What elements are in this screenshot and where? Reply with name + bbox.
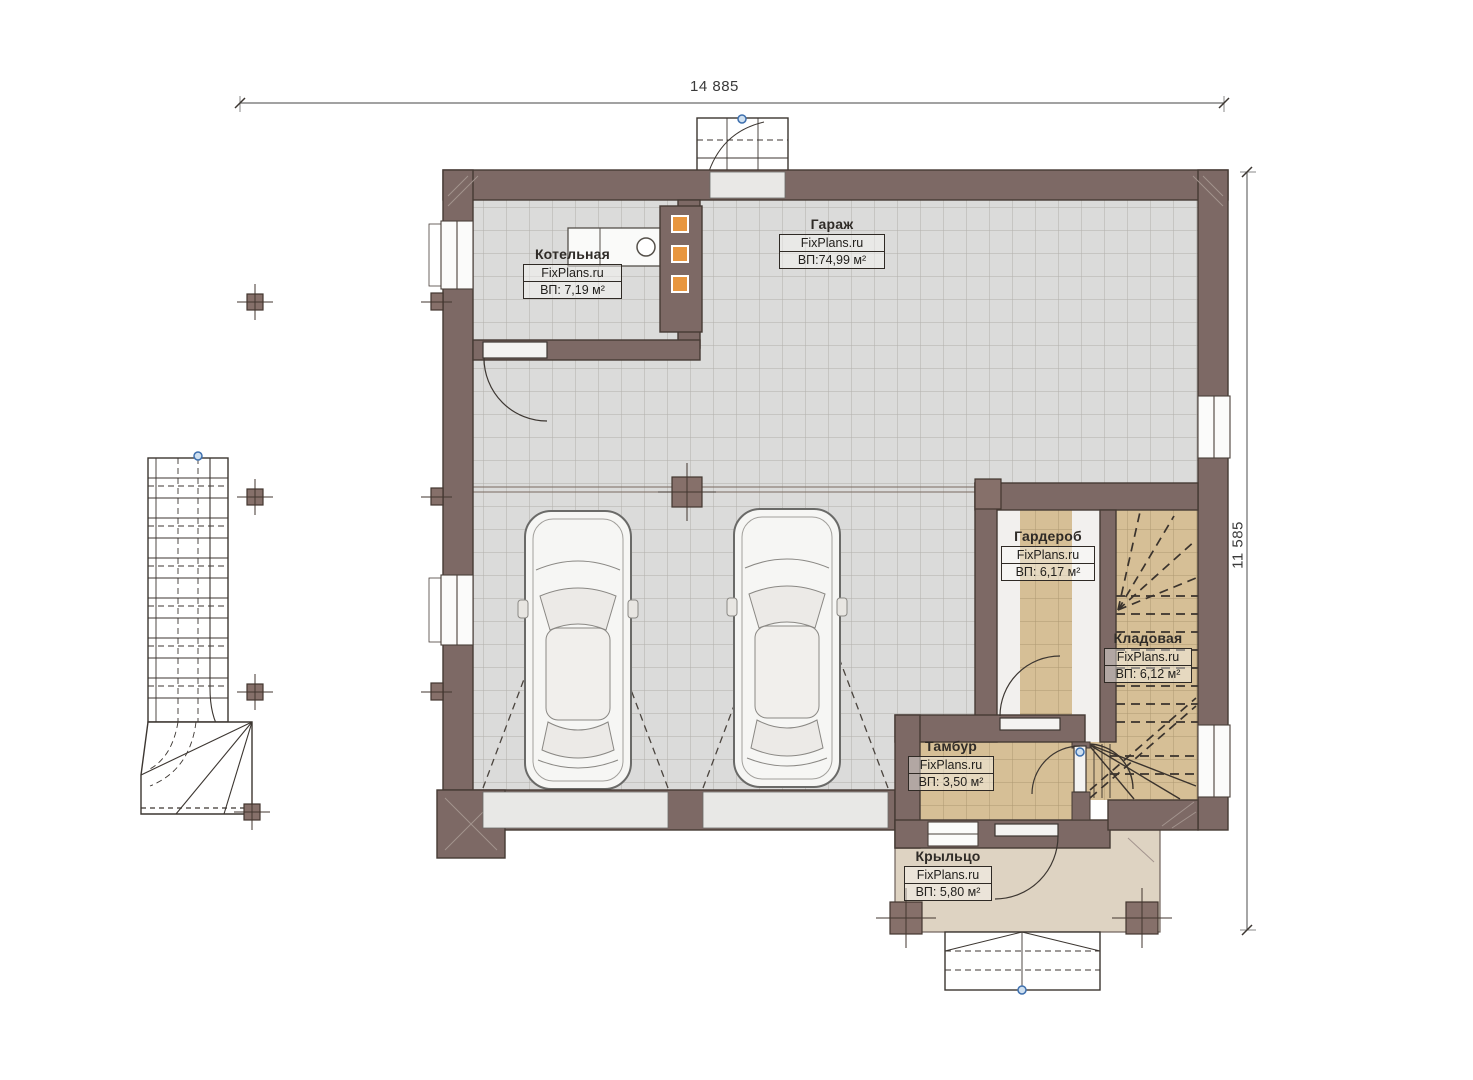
top-door-opening	[710, 172, 785, 198]
room-name: Гардероб	[1001, 528, 1095, 544]
flue-1	[672, 216, 688, 232]
room-name: Крыльцо	[904, 848, 992, 864]
porch-door-leaf	[995, 824, 1058, 836]
dimension-width-label: 14 885	[690, 78, 739, 95]
car-2	[727, 509, 847, 787]
area-text: ВП: 6,17 м²	[1002, 563, 1094, 580]
boiler-door-leaf	[483, 342, 547, 358]
area-text: ВП: 6,12 м²	[1105, 665, 1191, 682]
brand-text: FixPlans.ru	[1002, 547, 1094, 563]
area-text: ВП:74,99 м²	[780, 251, 884, 268]
dot-vestibule-door	[1076, 748, 1084, 756]
room-name: Котельная	[523, 246, 622, 262]
porch-steps	[945, 932, 1100, 990]
garage-hall-door-leaf	[1000, 718, 1060, 730]
exterior-stair-left	[141, 458, 252, 814]
garage-door-opening-1	[483, 792, 668, 828]
wall-wardrobe-stair-divider	[1100, 510, 1116, 742]
room-label-garage: Гараж FixPlans.ru ВП:74,99 м²	[779, 216, 885, 269]
room-label-storage: Кладовая FixPlans.ru ВП: 6,12 м²	[1104, 630, 1192, 683]
brand-text: FixPlans.ru	[524, 265, 621, 281]
room-info-box: FixPlans.ru ВП: 6,17 м²	[1001, 546, 1095, 581]
room-info-box: FixPlans.ru ВП:74,99 м²	[779, 234, 885, 269]
room-label-vestibule: Тамбур FixPlans.ru ВП: 3,50 м²	[908, 738, 994, 791]
dimension-height-label: 11 585	[1230, 521, 1247, 569]
room-name: Тамбур	[908, 738, 994, 754]
room-info-box: FixPlans.ru ВП: 3,50 м²	[908, 756, 994, 791]
dot-porch-steps	[1018, 986, 1026, 994]
column-garage-right	[975, 479, 1001, 509]
brand-text: FixPlans.ru	[1105, 649, 1191, 665]
flue-2	[672, 246, 688, 262]
garage-door-opening-2	[703, 792, 888, 828]
floor-plan-drawing	[0, 0, 1473, 1080]
room-info-box: FixPlans.ru ВП: 5,80 м²	[904, 866, 992, 901]
car-1	[518, 511, 638, 789]
brand-text: FixPlans.ru	[905, 867, 991, 883]
room-label-boiler: Котельная FixPlans.ru ВП: 7,19 м²	[523, 246, 622, 299]
flue-3	[672, 276, 688, 292]
room-name: Кладовая	[1104, 630, 1192, 646]
area-text: ВП: 3,50 м²	[909, 773, 993, 790]
area-text: ВП: 5,80 м²	[905, 883, 991, 900]
wall-stair-hall-bottom	[1108, 800, 1198, 830]
room-label-porch: Крыльцо FixPlans.ru ВП: 5,80 м²	[904, 848, 992, 901]
wall-wardrobe-left	[975, 483, 997, 742]
brand-text: FixPlans.ru	[909, 757, 993, 773]
dot-left-stair	[194, 452, 202, 460]
dot-top-steps	[738, 115, 746, 123]
room-name: Гараж	[779, 216, 885, 232]
wall-top	[443, 170, 1228, 200]
area-text: ВП: 7,19 м²	[524, 281, 621, 298]
room-label-wardrobe: Гардероб FixPlans.ru ВП: 6,17 м²	[1001, 528, 1095, 581]
room-info-box: FixPlans.ru ВП: 6,12 м²	[1104, 648, 1192, 683]
brand-text: FixPlans.ru	[780, 235, 884, 251]
wall-stair-block-top	[975, 483, 1198, 510]
floor-plan-canvas: Гараж FixPlans.ru ВП:74,99 м² Котельная …	[0, 0, 1473, 1080]
room-info-box: FixPlans.ru ВП: 7,19 м²	[523, 264, 622, 299]
